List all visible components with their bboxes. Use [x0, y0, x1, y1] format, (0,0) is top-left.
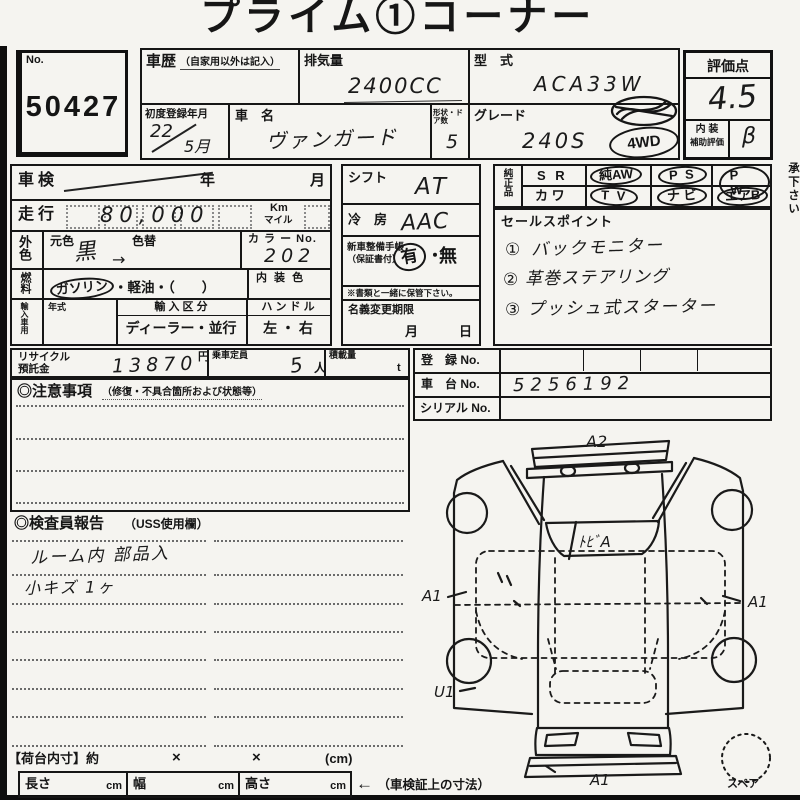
- oem-aw-circled: 純AW: [590, 165, 643, 187]
- oem-tv-circled: T V: [590, 186, 639, 207]
- handle-label: ハ ン ド ル: [246, 302, 330, 316]
- side-vertical-note: ◆純正品に関する表示は出品店の申告です（ナビ・TV等）※あらかじめご了承下さい: [781, 162, 800, 648]
- color-no-value: 202: [264, 247, 315, 266]
- color-arrow: →: [112, 252, 125, 268]
- ruled-line: [214, 540, 403, 542]
- doors-label: 形状・ドア数: [433, 109, 468, 125]
- exterior-color-row: 外色 元色 色替 黒 → カ ラ ー No. 202: [10, 230, 332, 270]
- ruled-line: [12, 659, 206, 661]
- spare-label: スペア: [727, 779, 759, 791]
- inspector-subtitle: （USS使用欄）: [124, 518, 209, 531]
- oem-sr: S R: [537, 169, 568, 183]
- ruled-line: [16, 438, 404, 440]
- cargo-note-text: （車検証上の寸法）: [377, 778, 490, 792]
- ruled-line: [12, 745, 206, 747]
- capacity-label: 乗車定員: [212, 351, 248, 360]
- mileage-unit-km: Km: [270, 203, 288, 215]
- model-year-label: 年式: [48, 303, 66, 312]
- shift-label: シフト: [348, 171, 387, 185]
- headlight-right: [628, 733, 661, 746]
- interior-grade-value: β: [742, 126, 756, 148]
- ruled-line: [12, 688, 206, 690]
- cargo-width-label: 幅: [133, 777, 146, 791]
- color-change-label: 色替: [132, 235, 156, 248]
- cargo-length-cell: 長さ cm: [18, 771, 128, 798]
- tick-divider: [697, 350, 698, 371]
- ruled-line: [214, 574, 403, 576]
- ac-cell: 冷 房 AAC: [341, 203, 481, 237]
- 4wd-stamp-label: 4WD: [627, 132, 662, 152]
- sales-points-label: セールスポイント: [501, 215, 613, 229]
- cargo-height-cm: cm: [330, 781, 346, 793]
- left-panel-edge: [454, 493, 532, 714]
- ruled-line: [16, 502, 404, 504]
- shift-value: AT: [415, 176, 449, 199]
- transfer-day: 日: [459, 325, 472, 339]
- shaken-row: 車検 年 月: [10, 164, 332, 201]
- auction-sheet: プライム①コーナー No. 50427 車歴 （自家用以外は記入） 排気量 24…: [0, 0, 800, 800]
- first-registration-cell: 初度登録年月 22 5月: [140, 103, 230, 160]
- cargo-height-cell: 高さ cm: [238, 771, 352, 798]
- fuel-rest: ・軽油・（ ）: [114, 280, 215, 295]
- divider: [207, 350, 209, 376]
- history-label: 車歴: [146, 54, 176, 70]
- score-label: 評価点: [686, 53, 770, 79]
- recycle-label-line2: 預託金: [18, 364, 50, 375]
- skirt-hand-tick: [546, 766, 555, 772]
- interior-grade-label: 内 装 補助評価: [686, 121, 730, 157]
- cargo-title: 【荷台内寸】約: [8, 752, 99, 766]
- left-pillar-flare-1: [503, 461, 539, 524]
- cargo-length-label: 長さ: [25, 777, 51, 791]
- inspector-title: ◎検査員報告: [14, 516, 104, 532]
- shaken-label: 車検: [18, 173, 58, 190]
- interior-grade-label-line1: 内 装: [686, 125, 728, 136]
- mileage-unit-mile: マイル: [264, 216, 293, 226]
- capacity-value: 5: [289, 354, 304, 376]
- damage-code-glass: ﾄﾋﾞA: [578, 533, 611, 551]
- cargo-height-label: 高さ: [245, 777, 271, 791]
- import-class-label: 輸 入 区 分: [116, 302, 246, 316]
- cargo-width-cm: cm: [218, 781, 234, 793]
- front-skirt-inner-line: [530, 763, 676, 766]
- ruled-line: [16, 405, 404, 407]
- ruled-line: [214, 659, 403, 661]
- spare-tire-circle: [722, 734, 770, 782]
- oem-leather: カ ワ: [535, 189, 565, 203]
- ac-label: 冷 房: [348, 213, 387, 227]
- import-row: 輸入車用 年式 輸 入 区 分 ディーラー・並行 ハ ン ド ル 左 ・ 右: [10, 298, 332, 346]
- page-title: プライム①コーナー: [200, 0, 595, 38]
- right-panel-top: [694, 458, 743, 491]
- fuel-row: 燃料 ガソリン・軽油・（ ） 内 装 色: [10, 268, 332, 300]
- left-panel-top: [454, 461, 503, 493]
- inspector-note-line1: ルーム内 部品入: [30, 546, 170, 568]
- ruled-line: [12, 540, 206, 542]
- inspector-note-line2: 小キズ 1ヶ: [24, 579, 116, 597]
- service-book-note: ※書類と一緒に保管下さい。: [347, 289, 458, 298]
- sales-item-3-num: ③: [505, 302, 520, 319]
- load-label: 積載量: [329, 351, 356, 360]
- lot-number: 50427: [22, 91, 125, 124]
- chassis-no-label: 車 台 No.: [421, 378, 480, 391]
- right-rear-wheel: [712, 638, 756, 682]
- handle-value: 左 ・ 右: [246, 321, 330, 336]
- mileage-label: 走行: [18, 207, 58, 224]
- import-label: 輸入車用: [20, 302, 28, 344]
- damage-tick: [460, 688, 475, 691]
- car-name-label: 車 名: [235, 109, 274, 123]
- mileage-extra-box: [304, 205, 330, 229]
- displacement-value: 2400CC: [348, 76, 443, 97]
- lot-number-box: No. 50427: [16, 50, 128, 157]
- panel-arc-dashed-right: [679, 611, 725, 659]
- model-code-label: 型 式: [474, 54, 513, 68]
- cargo-width-cell: 幅 cm: [126, 771, 240, 798]
- ruled-line: [214, 688, 403, 690]
- shaken-year-suffix: 年: [200, 173, 215, 189]
- color-value: 黒: [73, 241, 97, 265]
- cargo-times-2: ×: [252, 750, 261, 766]
- load-unit: t: [397, 363, 401, 375]
- grade-label: グレード: [474, 109, 526, 123]
- windshield-dashed: [550, 671, 656, 703]
- glass-mark-stroke: [569, 522, 576, 559]
- mileage-digit-box: [218, 205, 252, 229]
- damage-tick: [498, 573, 502, 582]
- displacement-label: 排気量: [304, 54, 343, 68]
- crossed-out-stamp: [608, 92, 680, 130]
- history-cell: 車歴 （自家用以外は記入）: [140, 48, 300, 105]
- displacement-cell: 排気量 2400CC: [298, 48, 470, 105]
- divider: [324, 350, 326, 376]
- oem-header: 純正品: [502, 168, 512, 206]
- ruled-line: [214, 603, 403, 605]
- ruled-line: [214, 631, 403, 633]
- divider: [499, 350, 501, 419]
- original-color-label: 元色: [50, 235, 74, 248]
- ac-value: AAC: [400, 211, 450, 236]
- sales-item-2-num: ②: [503, 272, 518, 289]
- panel-arc-dashed-left: [476, 611, 522, 659]
- car-name-cell: 車 名 ヴァンガード: [228, 103, 432, 160]
- lot-number-label: No.: [26, 55, 44, 67]
- recycle-value: 13870: [112, 355, 198, 377]
- front-window-dash-right: [650, 639, 658, 669]
- doors-value: 5: [446, 133, 458, 152]
- fuel-label: 燃料: [19, 272, 30, 300]
- ruled-line: [16, 470, 404, 472]
- transfer-deadline-cell: 名義変更期限 月 日: [341, 299, 481, 346]
- mileage-digit-box: [66, 205, 100, 229]
- ruled-line: [12, 603, 206, 605]
- rear-spoiler-inner-line: [535, 451, 666, 458]
- sales-points-box: セールスポイント ① バックモニター ② 革巻ステアリング ③ プッシュ式スター…: [493, 208, 772, 346]
- ruled-line: [12, 716, 206, 718]
- right-front-wheel: [712, 490, 752, 530]
- divider: [240, 232, 242, 268]
- transfer-month: 月: [405, 325, 418, 339]
- shaken-slash: [64, 172, 213, 192]
- cargo-note: ← （車検証上の寸法）: [356, 775, 490, 794]
- ruled-line: [214, 745, 403, 747]
- damage-code-rear: A2: [585, 432, 607, 451]
- model-code-value: ACA33W: [534, 74, 645, 94]
- car-damage-diagram: A2 ﾄﾋﾞA A1 A1 U1 A1: [418, 425, 778, 795]
- notes-box: ◎注意事項 （修復・不具合箇所および状態等）: [10, 378, 410, 512]
- sales-item-1-num: ①: [505, 242, 520, 259]
- registration-no-label: 登 録 No.: [421, 354, 480, 367]
- divider: [42, 232, 44, 268]
- grade-value: 240S: [522, 131, 587, 152]
- first-registration-label: 初度登録年月: [145, 109, 208, 120]
- front-bumper: [535, 728, 670, 755]
- sales-item-3: プッシュ式スターター: [527, 298, 717, 318]
- cargo-note-arrow: ←: [356, 774, 373, 793]
- interior-color-label: 内 装 色: [256, 273, 305, 285]
- notes-title: ◎注意事項: [17, 384, 92, 400]
- ruled-line: [12, 631, 206, 633]
- damage-tick: [701, 598, 707, 604]
- divider: [42, 270, 44, 298]
- mileage-value: 80,000: [100, 205, 209, 226]
- transfer-deadline-label: 名義変更期限: [348, 305, 414, 317]
- divider: [415, 396, 770, 398]
- cargo-times-1: ×: [172, 750, 181, 766]
- headlight-left: [545, 733, 578, 746]
- damage-code-right: A1: [747, 593, 768, 611]
- ruled-line: [214, 716, 403, 718]
- exterior-color-label: 外色: [18, 235, 31, 269]
- divider: [42, 300, 44, 344]
- fuel-options: ガソリン・軽油・（ ）: [50, 276, 215, 299]
- mileage-row: 走行 80,000 Km マイル: [10, 199, 332, 232]
- oem-ps-circled: P S: [658, 165, 708, 186]
- recycle-row: リサイクル 預託金 13870 円 乗車定員 5 人 積載量 t: [10, 348, 410, 378]
- cargo-length-cm: cm: [106, 781, 122, 793]
- ruled-line: [12, 574, 206, 576]
- sales-item-1: バックモニター: [531, 238, 665, 260]
- left-edge-bar: [0, 46, 7, 800]
- damage-code-front: A1: [589, 771, 610, 789]
- oem-navi-circled: ナ ビ: [657, 186, 708, 208]
- recycle-label-line1: リサイクル: [18, 352, 70, 363]
- score-value: 4.5: [707, 81, 758, 115]
- service-book-yes: 有: [391, 240, 428, 273]
- color-no-label: カ ラ ー No.: [248, 234, 317, 246]
- notes-subtitle: （修復・不具合箇所および状態等）: [102, 388, 262, 400]
- serial-no-label: シリアル No.: [420, 402, 491, 415]
- damage-code-left: A1: [421, 587, 442, 605]
- cargo-unit: (cm): [325, 752, 352, 766]
- divider: [247, 270, 249, 298]
- service-book-cell: 新車整備手帳 （保証書付） 有 ・ 無: [341, 235, 481, 287]
- damage-tick: [507, 576, 511, 585]
- tick-divider: [583, 350, 584, 371]
- oem-airbag-circled: エアB: [717, 186, 769, 208]
- chassis-no-value: 5256192: [513, 375, 635, 395]
- score-sub-row: 内 装 補助評価 β: [686, 119, 770, 157]
- service-book-no: 無: [439, 247, 457, 266]
- first-registration-month: 5月: [184, 139, 210, 155]
- service-book-yes-circled: 有: [393, 243, 426, 271]
- import-class-value: ディーラー・並行: [116, 321, 246, 336]
- score-box: 評価点 4.5 内 装 補助評価 β: [683, 50, 773, 160]
- interior-grade-label-line2: 補助評価: [686, 138, 728, 147]
- car-name-value: ヴァンガード: [266, 127, 399, 152]
- oem-table: 純正品 S R 純AW P S P W カ ワ T V ナ ビ エアB: [493, 164, 772, 208]
- history-sub-label: （自家用以外は記入）: [180, 58, 280, 70]
- shift-cell: シフト AT: [341, 164, 481, 205]
- tick-divider: [640, 350, 641, 371]
- damage-tick: [448, 592, 466, 597]
- door-seam-dashed: [455, 603, 741, 605]
- doors-cell: 形状・ドア数 5: [430, 103, 470, 160]
- registration-block: 登 録 No. 車 台 No. 5256192 シリアル No.: [413, 348, 772, 421]
- rear-gate-strip: [527, 462, 672, 478]
- sales-item-2: 革巻ステアリング: [525, 269, 669, 289]
- damage-code-bottom-left: U1: [434, 683, 455, 701]
- shaken-month-suffix: 月: [310, 173, 325, 189]
